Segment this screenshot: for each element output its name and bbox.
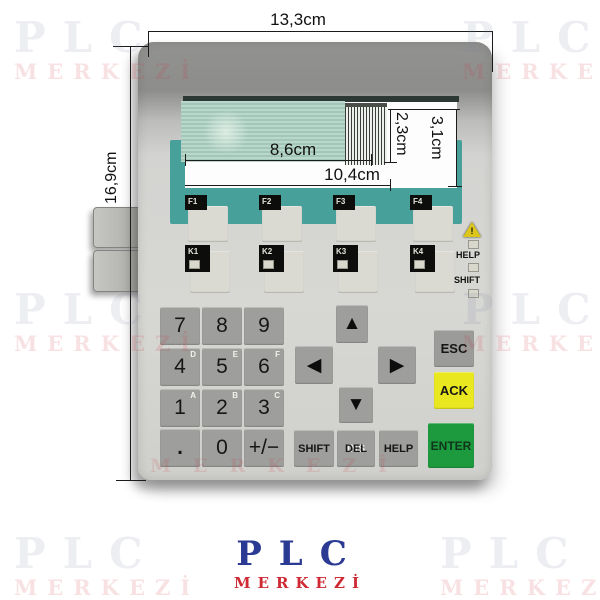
key-6[interactable]: F6 [244,348,284,386]
key-esc[interactable]: ESC [434,330,474,367]
dimension-tick [388,109,460,110]
arrow-up-icon: ▲ [343,313,362,335]
arrow-down-icon: ▼ [347,394,366,416]
dimension-label-cutout-width: 10,4cm [300,165,404,185]
plc-merkezi-logo: PLC MERKEZİ [170,536,430,592]
arrow-left-icon: ◀ [307,354,322,377]
fkey-label-f1: F1 [185,195,207,210]
kkey-led [337,260,348,269]
fkey-label-f2: F2 [259,195,281,210]
membrane-keypad-panel: F1 F2 F3 F4 K1 K2 K3 K4 ! HELP SHIFT 7 8… [138,42,492,480]
key-4[interactable]: D4 [160,348,200,386]
key-ack[interactable]: ACK [434,372,474,409]
key-8[interactable]: 8 [202,307,242,345]
key-shift[interactable]: SHIFT [294,430,334,467]
key-arrow-left[interactable]: ◀ [295,346,333,384]
warning-triangle-icon: ! [463,222,481,237]
fkey-label-f4: F4 [410,195,432,210]
shift-led [468,289,479,298]
key-ins-del[interactable]: INS DEL [337,430,375,467]
dimension-line-width [148,31,492,32]
dimension-tick [448,186,462,187]
kkey-label-k1: K1 [185,245,210,272]
kkey-led [189,260,200,269]
fkey-label-f3: F3 [333,195,355,210]
kkey-label-k3: K3 [333,245,358,272]
dimension-line-height [130,46,131,481]
arrow-right-icon: ▶ [390,354,405,377]
product-photo: PLC MERKEZİ PLC MERKEZİ PLC MERKEZİ PLC … [0,0,600,600]
dimension-tick [492,31,493,72]
shift-indicator-label: SHIFT [454,275,480,285]
key-sub-label: F [275,350,280,359]
dimension-line-cutout-width [185,185,391,186]
dimension-tick [185,154,186,166]
key-arrow-down[interactable]: ▼ [339,387,373,423]
key-f2[interactable] [262,206,302,242]
kkey-led [263,260,274,269]
dimension-tick [148,31,149,57]
key-help[interactable]: HELP [379,430,418,467]
key-3[interactable]: C3 [244,389,284,427]
dimension-tick [116,480,146,481]
key-1[interactable]: A1 [160,389,200,427]
key-2[interactable]: B2 [202,389,242,427]
key-arrow-up[interactable]: ▲ [336,305,368,343]
dimension-label-cutout-height: 3,1cm [427,116,445,178]
key-f1[interactable] [188,206,228,242]
key-sub-label: A [190,391,196,400]
dimension-line-display-width [185,160,372,161]
kkey-label-k4: K4 [410,245,435,272]
dimension-label-display-width: 8,6cm [246,140,340,160]
key-f3[interactable] [336,206,376,242]
key-sub-label: B [232,391,238,400]
dimension-label-overall-width: 13,3cm [238,10,358,30]
lcd-sheen [201,111,251,153]
key-sub-label: D [190,350,196,359]
logo-line1: PLC [170,536,430,572]
key-enter[interactable]: ENTER [428,423,474,468]
key-sub-label: E [233,350,238,359]
kkey-label-k2: K2 [259,245,284,272]
dimension-label-display-height: 2,3cm [392,112,410,166]
dimension-label-overall-height: 16,9cm [103,132,121,204]
dimension-tick [113,46,148,47]
help-indicator-label: HELP [456,250,480,260]
key-decimal[interactable]: . [160,429,200,467]
logo-line2: MERKEZİ [170,574,430,592]
dimension-line-display-height [390,109,391,163]
help-led [468,263,479,272]
key-5[interactable]: E5 [202,348,242,386]
dimension-line-cutout-height [456,109,457,187]
key-plus-minus[interactable]: +/− [244,429,284,467]
key-7[interactable]: 7 [160,307,200,345]
key-0[interactable]: 0 [202,429,242,467]
key-f4[interactable] [413,206,453,242]
watermark: PLC MERKEZİ [440,532,600,599]
key-sub-label: C [274,391,280,400]
kkey-led [414,260,425,269]
key-9[interactable]: 9 [244,307,284,345]
warning-led [468,240,479,249]
key-arrow-right[interactable]: ▶ [378,346,416,384]
ribbon-connector [345,103,387,165]
